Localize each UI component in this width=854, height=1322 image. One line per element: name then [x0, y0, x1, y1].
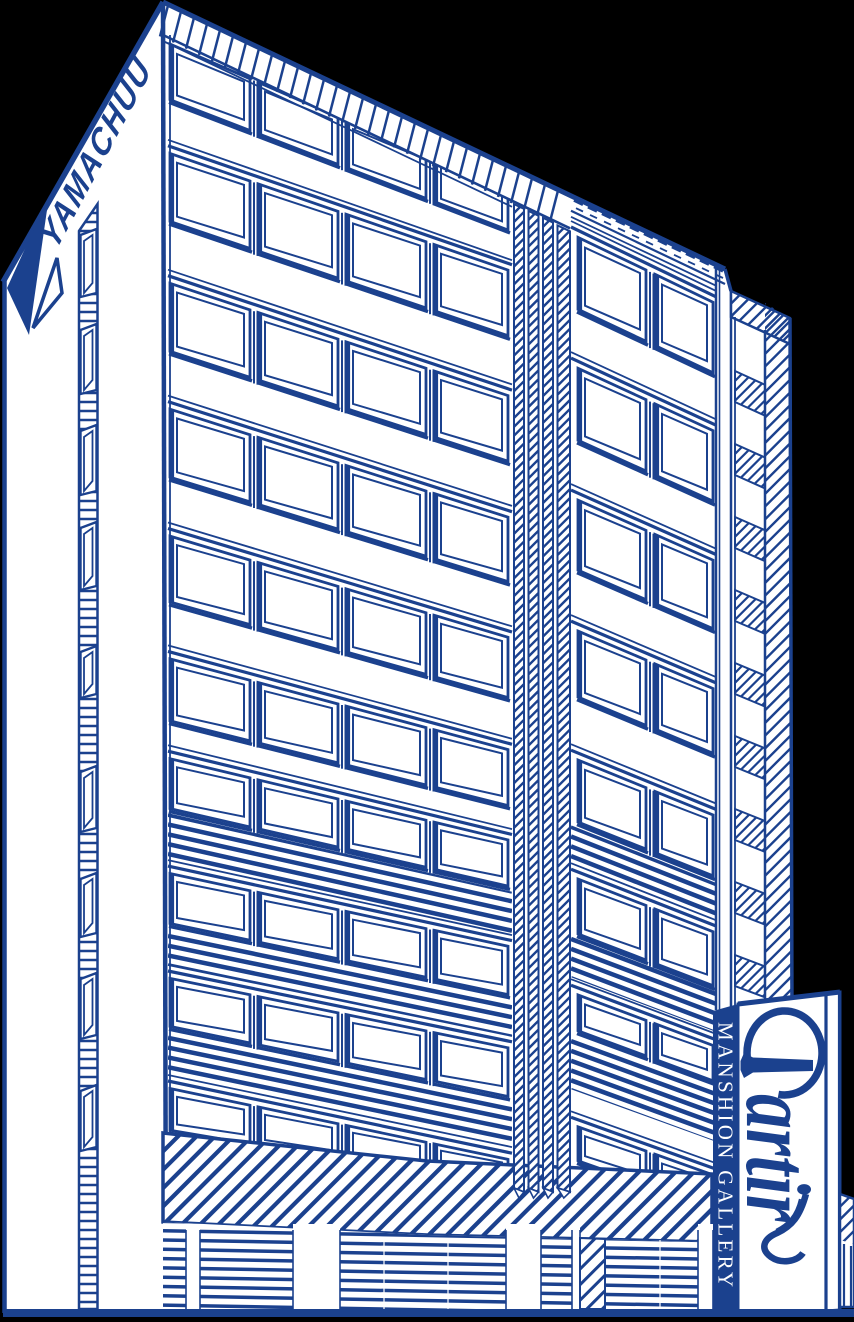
svg-text:artir: artir [727, 1094, 829, 1223]
